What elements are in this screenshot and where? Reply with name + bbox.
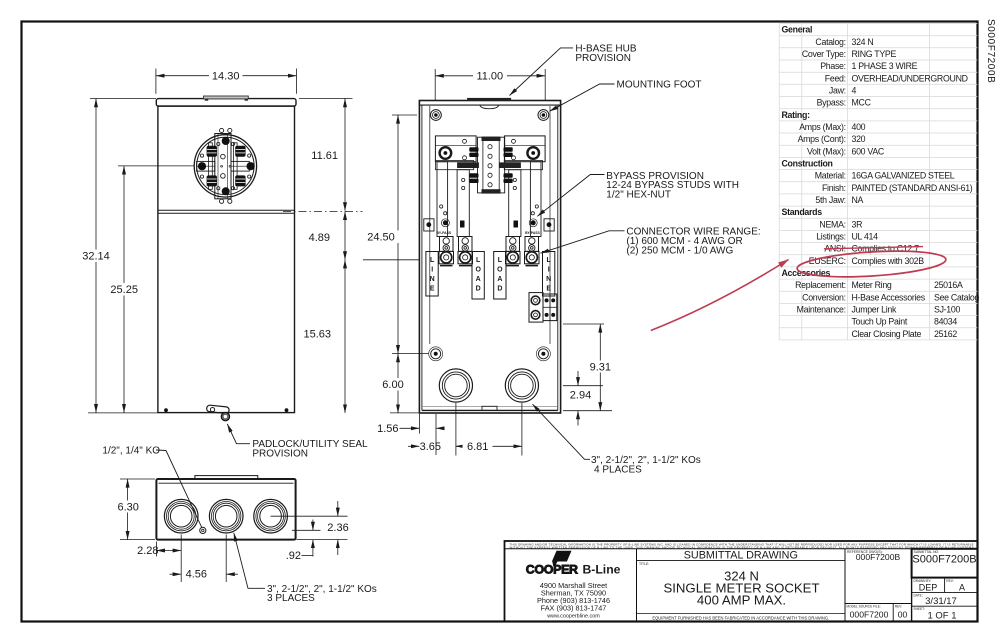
svg-text:Jaw:: Jaw: bbox=[829, 85, 846, 95]
svg-text:4.89: 4.89 bbox=[309, 232, 330, 244]
svg-text:FAX (903) 813-1747: FAX (903) 813-1747 bbox=[541, 603, 607, 612]
svg-text:PROVISION: PROVISION bbox=[575, 53, 631, 64]
svg-text:6.81: 6.81 bbox=[467, 441, 488, 453]
svg-text:2.28: 2.28 bbox=[137, 545, 158, 557]
svg-text:NA: NA bbox=[852, 195, 864, 205]
svg-text:3 PLACES: 3 PLACES bbox=[267, 593, 315, 604]
svg-text:Replacement:: Replacement: bbox=[795, 280, 846, 290]
svg-text:E: E bbox=[430, 286, 435, 293]
svg-text:D: D bbox=[476, 286, 481, 293]
svg-text:Amps (Cont):: Amps (Cont): bbox=[798, 134, 846, 144]
svg-text:25162: 25162 bbox=[934, 329, 957, 339]
svg-text:Finish:: Finish: bbox=[822, 183, 846, 193]
svg-text:3.65: 3.65 bbox=[420, 441, 441, 453]
svg-text:DATE:: DATE: bbox=[914, 593, 923, 597]
svg-text:4 PLACES: 4 PLACES bbox=[594, 464, 642, 475]
svg-text:COOPER: COOPER bbox=[526, 563, 578, 577]
svg-text:25.25: 25.25 bbox=[110, 284, 138, 296]
svg-text:See Catalog: See Catalog bbox=[934, 292, 980, 302]
svg-text:EQUIPMENT FURNISHED HAS BEEN F: EQUIPMENT FURNISHED HAS BEEN FABRICATED … bbox=[652, 615, 829, 620]
svg-text:Material:: Material: bbox=[815, 171, 846, 181]
svg-text:Conversion:: Conversion: bbox=[802, 292, 846, 302]
svg-text:SUBMITTAL DRAWING: SUBMITTAL DRAWING bbox=[684, 549, 798, 561]
svg-text:N: N bbox=[546, 276, 551, 283]
svg-text:3R: 3R bbox=[852, 219, 863, 229]
svg-text:400: 400 bbox=[852, 122, 866, 132]
svg-text:MCC: MCC bbox=[852, 98, 872, 108]
svg-text:PROVISION: PROVISION bbox=[252, 449, 308, 460]
svg-text:Listings:: Listings: bbox=[816, 232, 846, 242]
svg-text:REV:: REV: bbox=[895, 604, 902, 608]
svg-text:I: I bbox=[431, 267, 433, 274]
svg-text:32.14: 32.14 bbox=[82, 251, 110, 263]
svg-text:000F7200: 000F7200 bbox=[850, 610, 889, 620]
svg-text:Maintenance:: Maintenance: bbox=[797, 305, 846, 315]
svg-text:9.31: 9.31 bbox=[590, 361, 611, 373]
svg-text:1/2" HEX-NUT: 1/2" HEX-NUT bbox=[606, 189, 671, 200]
svg-text:24.50: 24.50 bbox=[367, 232, 395, 244]
svg-text:4.56: 4.56 bbox=[186, 569, 207, 581]
svg-text:Complies with 302B: Complies with 302B bbox=[852, 256, 925, 266]
svg-text:6.30: 6.30 bbox=[117, 502, 138, 514]
svg-text:RING TYPE: RING TYPE bbox=[852, 49, 897, 59]
svg-text:MODEL SOURCE FILE:: MODEL SOURCE FILE: bbox=[847, 604, 881, 608]
svg-text:General: General bbox=[782, 25, 813, 35]
svg-text:11.00: 11.00 bbox=[476, 71, 503, 83]
svg-text:BY-PASS: BY-PASS bbox=[436, 231, 451, 235]
svg-text:Catalog:: Catalog: bbox=[815, 37, 845, 47]
svg-text:Clear Closing Plate: Clear Closing Plate bbox=[852, 329, 922, 339]
svg-text:H-Base Accessories: H-Base Accessories bbox=[852, 292, 926, 302]
svg-text:MOUNTING FOOT: MOUNTING FOOT bbox=[617, 80, 702, 91]
svg-text:Construction: Construction bbox=[782, 159, 833, 169]
svg-text:.92: .92 bbox=[286, 550, 301, 562]
svg-text:S000F7200B: S000F7200B bbox=[912, 554, 976, 566]
svg-text:O: O bbox=[475, 267, 481, 274]
svg-text:REV:: REV: bbox=[946, 579, 953, 583]
svg-text:84034: 84034 bbox=[934, 317, 957, 327]
svg-text:4: 4 bbox=[852, 85, 857, 95]
svg-text:Feed:: Feed: bbox=[825, 73, 846, 83]
svg-text:16GA GALVANIZED STEEL: 16GA GALVANIZED STEEL bbox=[852, 171, 955, 181]
svg-text:B-Line: B-Line bbox=[583, 563, 621, 577]
svg-text:I: I bbox=[548, 267, 550, 274]
svg-text:324 N: 324 N bbox=[852, 37, 874, 47]
svg-text:1/2", 1/4" KO: 1/2", 1/4" KO bbox=[102, 446, 160, 457]
svg-text:00: 00 bbox=[898, 610, 908, 620]
svg-text:www.cooperbline.com: www.cooperbline.com bbox=[546, 614, 600, 620]
svg-text:Cover Type:: Cover Type: bbox=[802, 49, 846, 59]
svg-text:Standards: Standards bbox=[782, 207, 823, 217]
svg-text:L: L bbox=[476, 257, 481, 264]
svg-text:SHEET:: SHEET: bbox=[914, 607, 925, 611]
svg-text:400 AMP MAX.: 400 AMP MAX. bbox=[697, 592, 786, 607]
svg-text:Volt (Max):: Volt (Max): bbox=[807, 146, 846, 156]
svg-text:A: A bbox=[497, 276, 502, 283]
svg-text:6.00: 6.00 bbox=[382, 379, 403, 391]
svg-text:PAINTED (STANDARD ANSI-61): PAINTED (STANDARD ANSI-61) bbox=[852, 183, 973, 193]
svg-text:S000F7200B: S000F7200B bbox=[985, 19, 996, 83]
svg-text:TITLE:: TITLE: bbox=[639, 562, 649, 566]
svg-text:O: O bbox=[497, 267, 503, 274]
svg-text:L: L bbox=[498, 257, 503, 264]
svg-text:OVERHEAD/UNDERGROUND: OVERHEAD/UNDERGROUND bbox=[852, 73, 968, 83]
svg-text:600 VAC: 600 VAC bbox=[852, 146, 885, 156]
svg-text:Touch Up Paint: Touch Up Paint bbox=[852, 317, 908, 327]
svg-text:Jumper Link: Jumper Link bbox=[852, 305, 898, 315]
svg-text:Rating:: Rating: bbox=[782, 110, 811, 120]
svg-text:Phase:: Phase: bbox=[820, 61, 846, 71]
svg-text:15.63: 15.63 bbox=[303, 329, 331, 341]
svg-text:2.94: 2.94 bbox=[570, 389, 591, 401]
svg-text:(2) 250 MCM - 1/0 AWG: (2) 250 MCM - 1/0 AWG bbox=[626, 245, 733, 256]
svg-text:Amps (Max):: Amps (Max): bbox=[799, 122, 846, 132]
svg-text:2.36: 2.36 bbox=[327, 522, 348, 534]
svg-text:11.61: 11.61 bbox=[311, 150, 338, 162]
svg-text:L: L bbox=[430, 257, 435, 264]
svg-text:Meter Ring: Meter Ring bbox=[852, 280, 892, 290]
svg-text:DEP: DEP bbox=[919, 582, 938, 592]
svg-text:5th Jaw:: 5th Jaw: bbox=[815, 195, 845, 205]
svg-text:320: 320 bbox=[852, 134, 866, 144]
svg-text:A: A bbox=[476, 276, 481, 283]
svg-text:D: D bbox=[497, 286, 502, 293]
svg-text:L: L bbox=[547, 257, 552, 264]
svg-text:A: A bbox=[959, 582, 965, 592]
svg-text:N: N bbox=[430, 276, 435, 283]
svg-text:3/31/17: 3/31/17 bbox=[925, 596, 957, 607]
svg-text:14.30: 14.30 bbox=[212, 71, 240, 83]
svg-text:NEMA:: NEMA: bbox=[819, 219, 845, 229]
svg-text:SJ-100: SJ-100 bbox=[934, 305, 960, 315]
svg-text:E: E bbox=[546, 286, 551, 293]
svg-text:000F7200B: 000F7200B bbox=[856, 552, 901, 562]
svg-text:Bypass:: Bypass: bbox=[817, 98, 846, 108]
svg-text:1.56: 1.56 bbox=[377, 423, 398, 435]
svg-text:1 OF 1: 1 OF 1 bbox=[927, 611, 956, 622]
svg-text:UL 414: UL 414 bbox=[852, 232, 879, 242]
svg-text:25016A: 25016A bbox=[934, 280, 963, 290]
svg-text:1 PHASE 3 WIRE: 1 PHASE 3 WIRE bbox=[852, 61, 918, 71]
svg-text:BY-PASS: BY-PASS bbox=[525, 231, 540, 235]
